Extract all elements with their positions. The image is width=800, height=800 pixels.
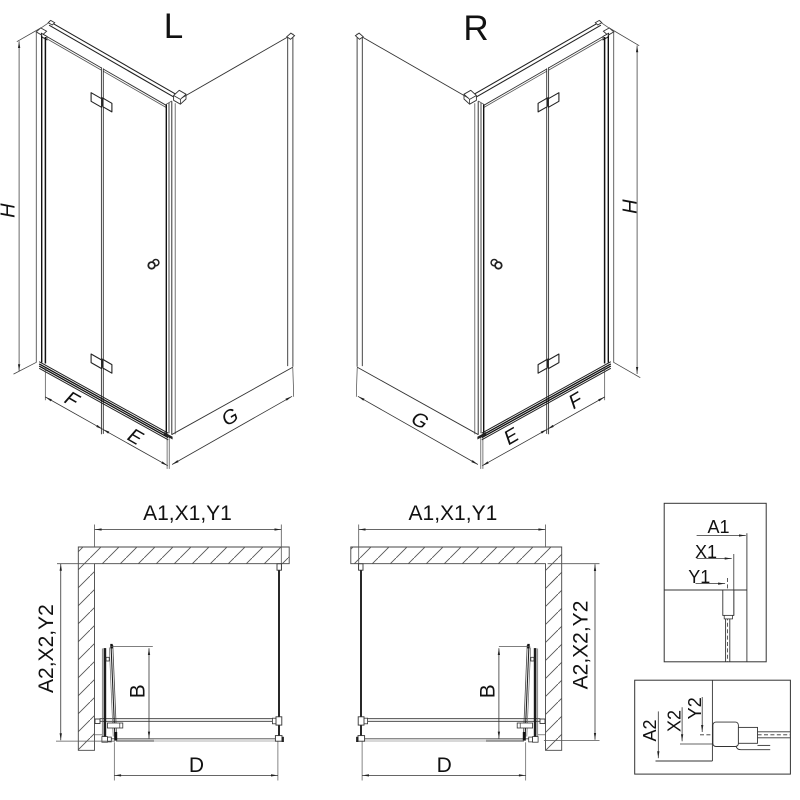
svg-text:Y1: Y1 [688, 567, 710, 587]
svg-text:X1: X1 [695, 542, 717, 562]
svg-text:B: B [127, 684, 150, 698]
svg-text:A2,X2,Y2: A2,X2,Y2 [570, 601, 593, 690]
svg-text:D: D [189, 754, 204, 777]
svg-text:B: B [476, 684, 499, 698]
svg-text:R: R [463, 9, 488, 48]
svg-text:A2: A2 [640, 719, 660, 741]
svg-text:A2,X2,Y2: A2,X2,Y2 [35, 604, 58, 693]
svg-text:H: H [618, 199, 640, 214]
svg-text:A1,X1,Y1: A1,X1,Y1 [409, 502, 498, 525]
svg-text:L: L [164, 7, 183, 46]
svg-text:A1: A1 [707, 517, 729, 537]
svg-text:D: D [437, 754, 452, 777]
svg-text:H: H [0, 203, 20, 218]
svg-text:A1,X1,Y1: A1,X1,Y1 [143, 502, 232, 525]
